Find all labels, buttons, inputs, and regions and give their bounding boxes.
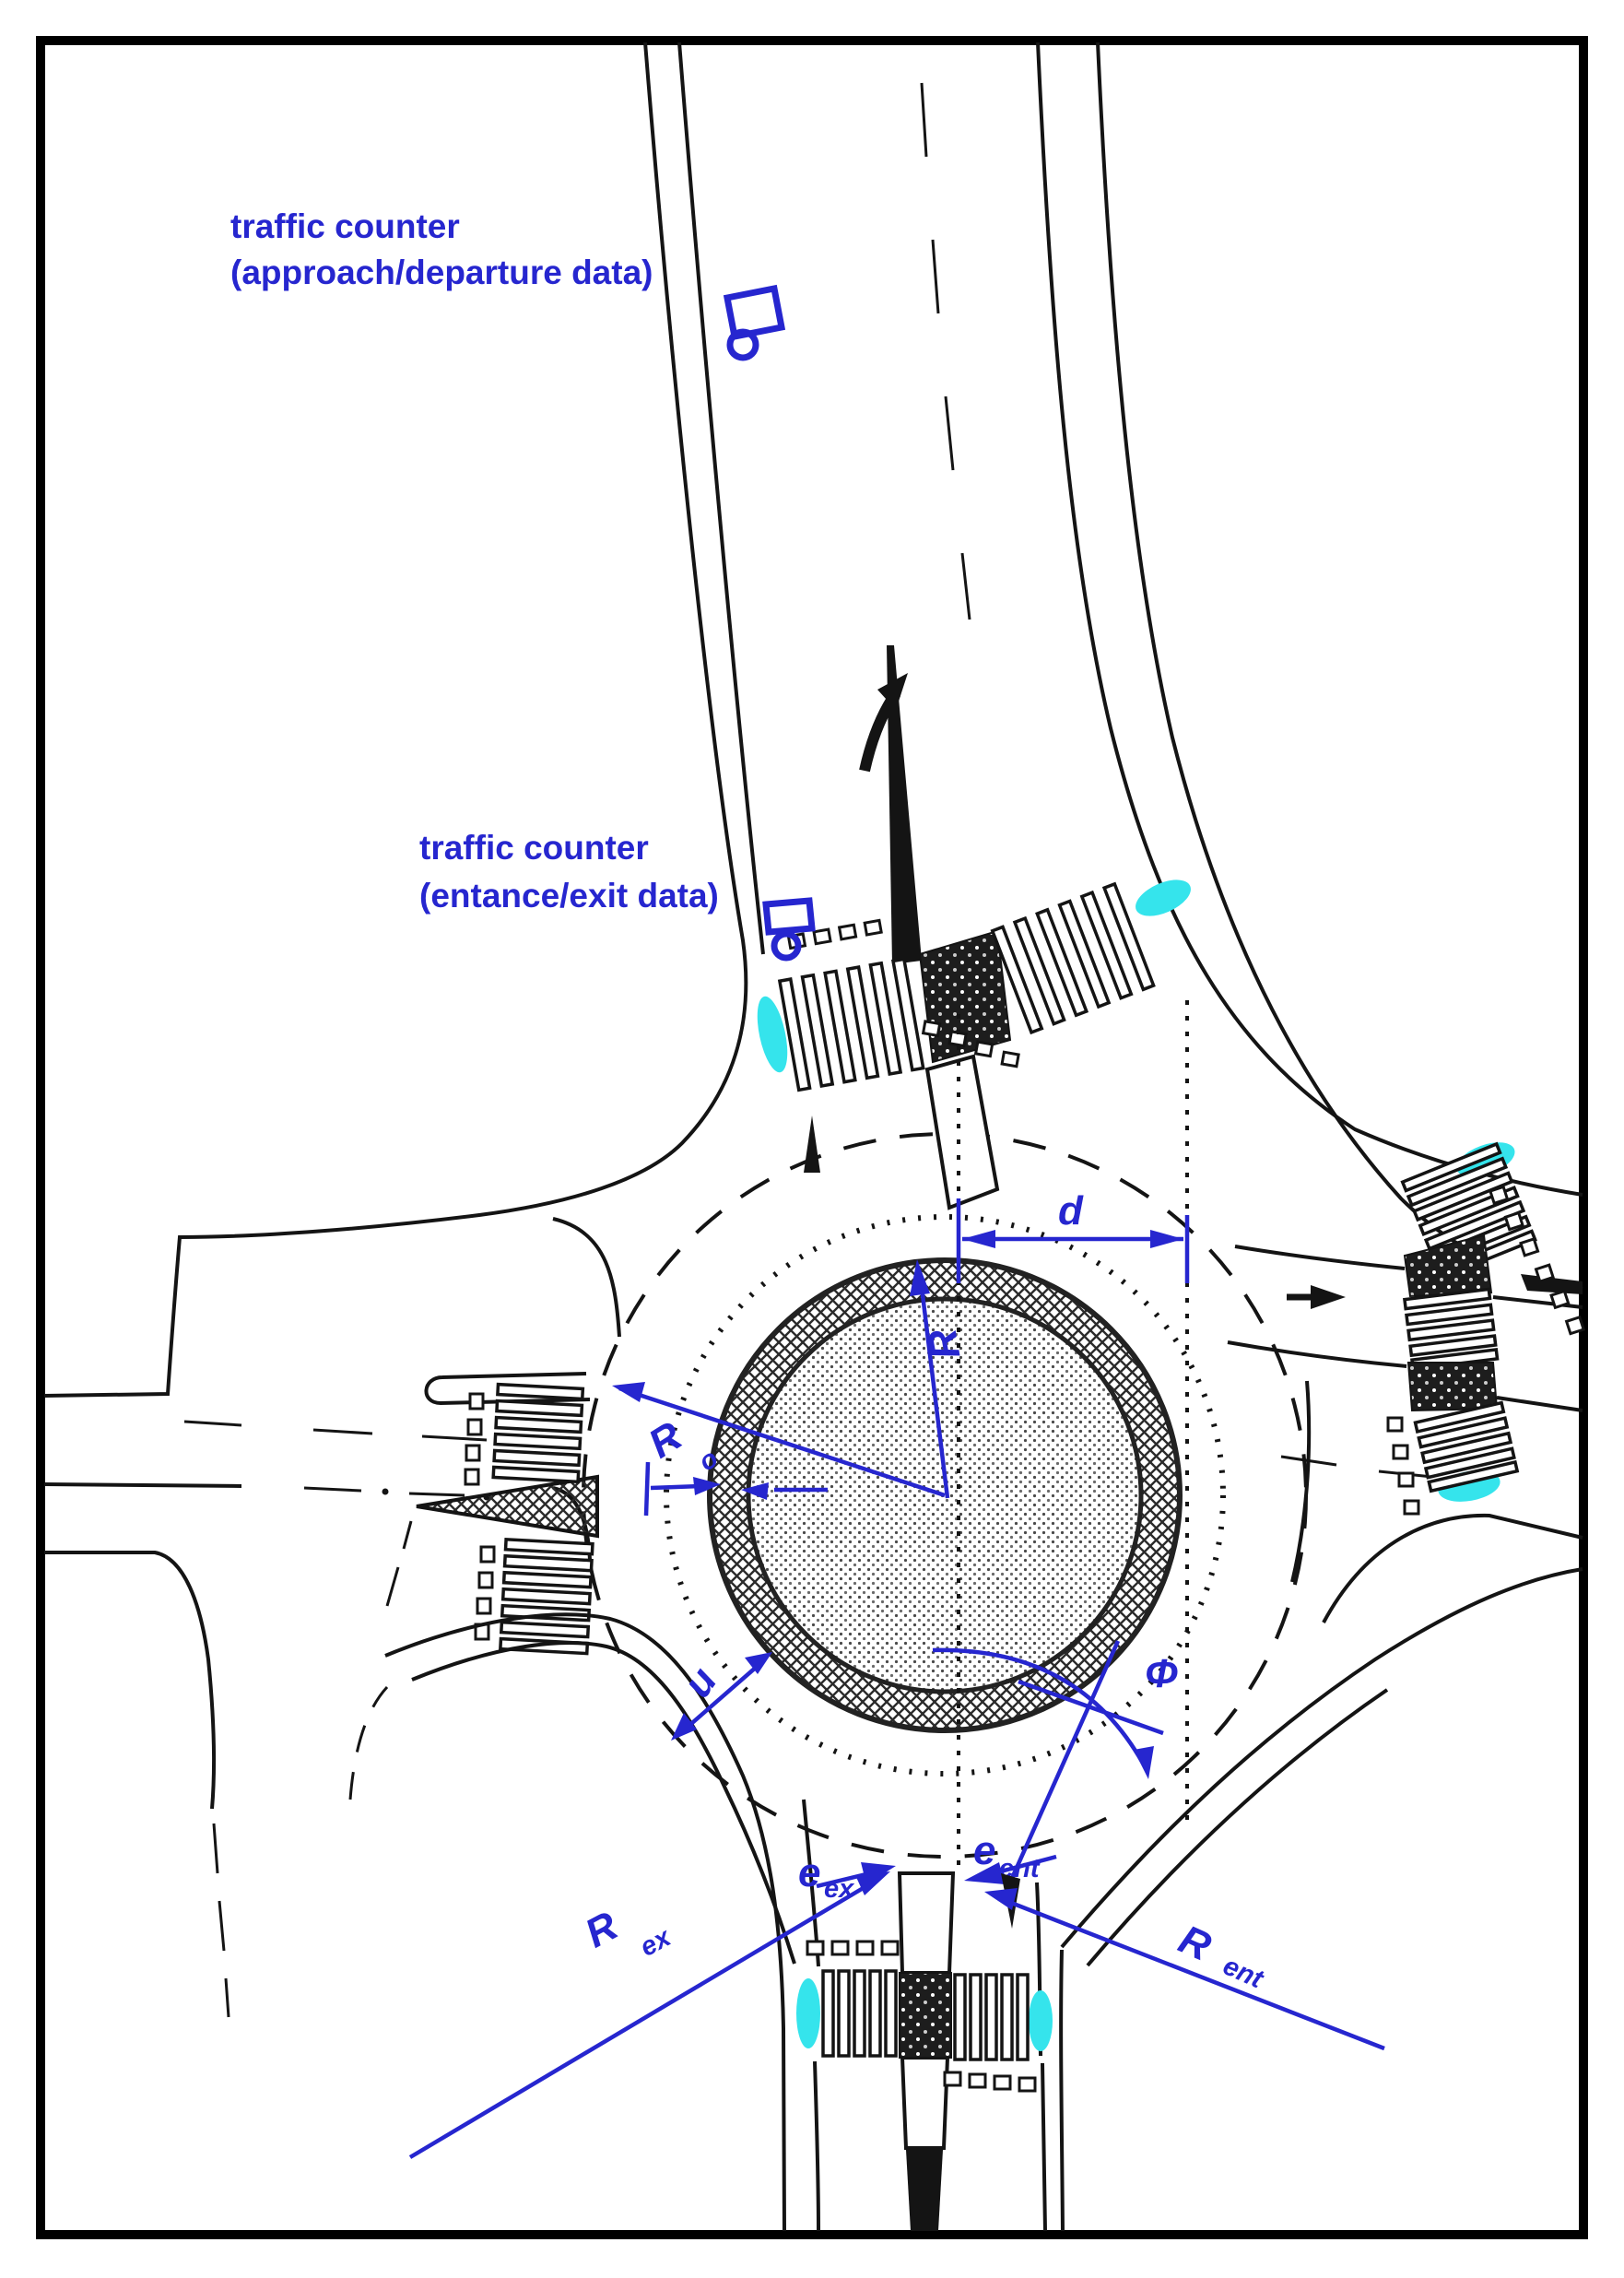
eex-label: e xyxy=(798,1850,820,1895)
eex-sub: ex xyxy=(824,1874,855,1904)
eent-label: e xyxy=(973,1828,995,1873)
diagram-canvas: d R R o u xyxy=(0,0,1624,2278)
roundabout-diagram: d R R o u xyxy=(0,0,1624,2278)
counter1-label-line2: (approach/departure data) xyxy=(230,254,653,291)
d-label: d xyxy=(1058,1188,1084,1233)
phi-label: Φ xyxy=(1145,1651,1178,1696)
counter2-label-line2: (entance/exit data) xyxy=(419,877,719,915)
counter2-label-line1: traffic counter xyxy=(419,829,649,867)
counter1-label-line1: traffic counter xyxy=(230,207,460,245)
